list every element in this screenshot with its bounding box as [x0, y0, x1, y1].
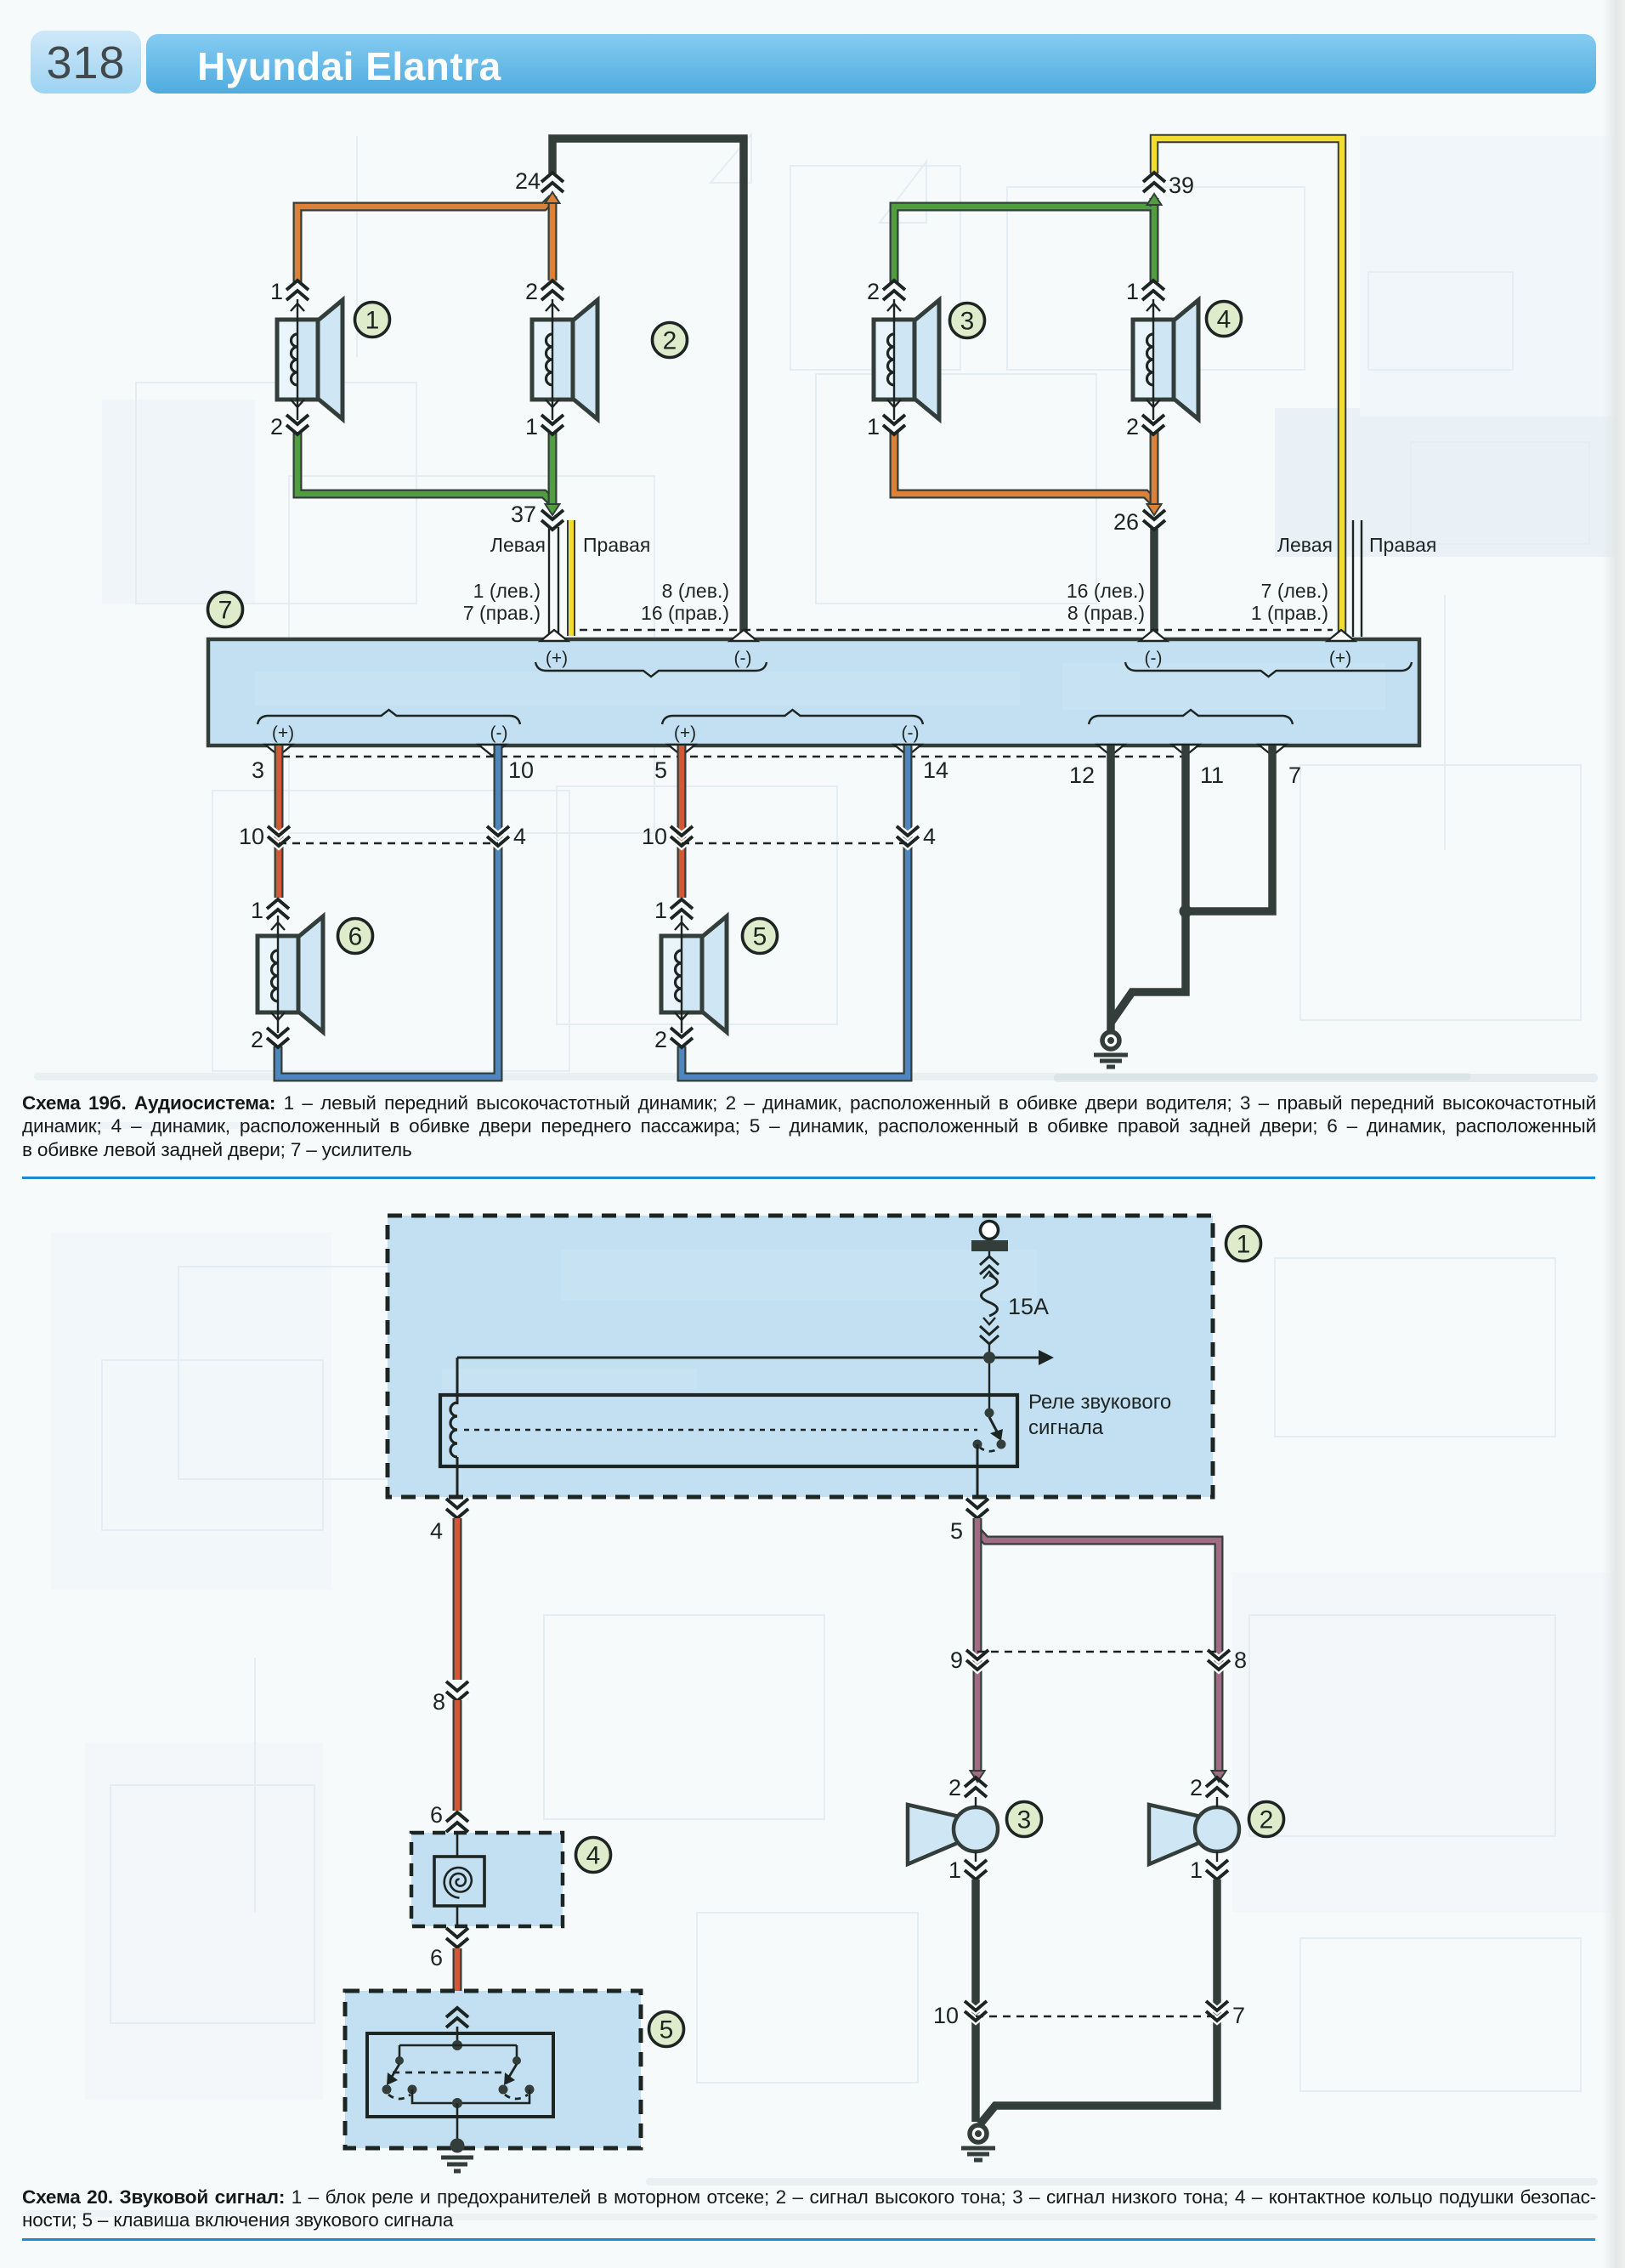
svg-text:3: 3: [960, 308, 975, 336]
svg-text:24: 24: [515, 168, 541, 194]
svg-text:5: 5: [753, 923, 767, 951]
svg-text:4: 4: [923, 824, 936, 849]
svg-text:1: 1: [1126, 279, 1139, 304]
svg-text:Реле звукового: Реле звукового: [1028, 1391, 1171, 1414]
svg-text:37: 37: [511, 502, 536, 527]
svg-text:Левая: Левая: [1277, 534, 1333, 556]
svg-text:1 (прав.): 1 (прав.): [1251, 602, 1328, 624]
svg-text:10: 10: [239, 824, 264, 849]
svg-text:2: 2: [1126, 414, 1139, 439]
svg-text:2: 2: [948, 1775, 961, 1800]
svg-text:2: 2: [663, 327, 677, 355]
svg-text:(-): (-): [902, 723, 920, 743]
svg-text:4: 4: [586, 1842, 601, 1870]
svg-text:5: 5: [950, 1518, 963, 1544]
svg-text:8 (лев.): 8 (лев.): [662, 580, 729, 602]
svg-text:1: 1: [251, 898, 263, 923]
svg-text:6: 6: [430, 1802, 443, 1828]
svg-text:(+): (+): [546, 649, 568, 668]
svg-text:16 (лев.): 16 (лев.): [1067, 580, 1145, 602]
svg-text:12: 12: [1069, 763, 1095, 788]
svg-text:7 (лев.): 7 (лев.): [1261, 580, 1328, 602]
svg-text:2: 2: [251, 1027, 263, 1052]
svg-text:(-): (-): [734, 649, 752, 668]
svg-text:16 (прав.): 16 (прав.): [641, 602, 729, 624]
svg-text:Правая: Правая: [1369, 534, 1436, 556]
svg-text:8 (прав.): 8 (прав.): [1067, 602, 1145, 624]
svg-text:1: 1: [365, 307, 380, 335]
svg-text:2: 2: [1260, 1806, 1274, 1834]
svg-text:2: 2: [867, 279, 880, 304]
svg-text:Правая: Правая: [583, 534, 650, 556]
svg-text:2: 2: [654, 1027, 667, 1052]
svg-text:(+): (+): [674, 723, 696, 743]
svg-text:10: 10: [508, 757, 534, 783]
svg-text:26: 26: [1113, 509, 1139, 535]
svg-text:1 (лев.): 1 (лев.): [473, 580, 541, 602]
svg-text:14: 14: [923, 757, 948, 783]
svg-text:1: 1: [654, 898, 667, 923]
svg-text:(-): (-): [1145, 649, 1163, 668]
svg-text:9: 9: [950, 1647, 963, 1673]
svg-text:3: 3: [1017, 1806, 1032, 1834]
svg-text:7 (прав.): 7 (прав.): [463, 602, 541, 624]
svg-text:5: 5: [660, 2016, 674, 2044]
svg-text:(+): (+): [272, 723, 294, 743]
svg-text:4: 4: [430, 1518, 443, 1544]
svg-text:Левая: Левая: [490, 534, 546, 556]
svg-text:1: 1: [1190, 1857, 1203, 1883]
svg-text:7: 7: [1288, 763, 1301, 788]
svg-text:4: 4: [1217, 306, 1231, 334]
svg-text:3: 3: [252, 757, 264, 783]
svg-text:11: 11: [1200, 763, 1224, 788]
svg-text:7: 7: [218, 597, 233, 625]
svg-text:39: 39: [1169, 173, 1194, 198]
svg-text:2: 2: [270, 414, 283, 439]
svg-text:8: 8: [433, 1689, 445, 1715]
svg-text:2: 2: [1190, 1775, 1203, 1800]
svg-text:6: 6: [430, 1945, 443, 1970]
svg-text:15A: 15A: [1008, 1294, 1049, 1319]
svg-text:1: 1: [1237, 1231, 1251, 1259]
svg-text:10: 10: [642, 824, 667, 849]
svg-text:6: 6: [348, 923, 363, 951]
svg-text:1: 1: [270, 279, 283, 304]
svg-text:1: 1: [948, 1857, 961, 1883]
svg-text:4: 4: [513, 824, 526, 849]
svg-text:1: 1: [867, 414, 880, 439]
svg-text:5: 5: [654, 757, 667, 783]
svg-text:10: 10: [933, 2003, 959, 2028]
svg-text:сигнала: сигнала: [1028, 1416, 1104, 1439]
svg-text:7: 7: [1232, 2003, 1245, 2028]
svg-text:(-): (-): [490, 723, 508, 743]
svg-text:(+): (+): [1329, 649, 1351, 668]
svg-text:2: 2: [525, 279, 538, 304]
svg-text:8: 8: [1234, 1647, 1247, 1673]
svg-text:1: 1: [525, 414, 538, 439]
